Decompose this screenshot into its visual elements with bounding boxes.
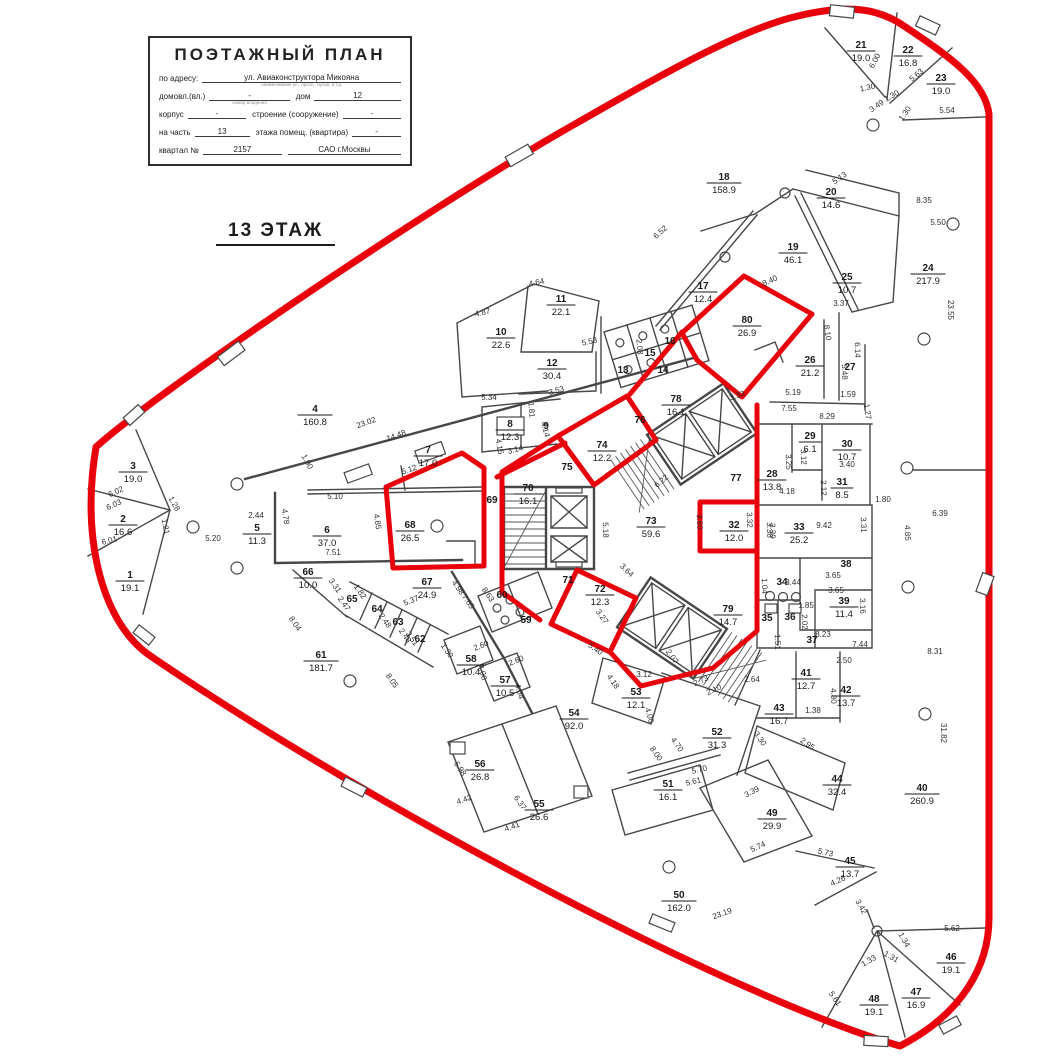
dimension-label: 4.00 — [476, 664, 489, 682]
room-label: 8026.9 — [733, 315, 762, 339]
svg-text:75: 75 — [561, 462, 573, 473]
dimension-label: 4.85 — [903, 525, 913, 541]
svg-text:11.3: 11.3 — [248, 536, 266, 547]
dimension-label: 2.10 — [705, 682, 723, 697]
dimension-label: 3.64 — [618, 562, 636, 580]
room-label: 2621.2 — [796, 355, 825, 379]
svg-text:69: 69 — [486, 495, 498, 506]
dimension-label: 4.14 — [539, 421, 552, 439]
stroenie-value: - — [343, 109, 401, 119]
title-row-house: домовл.(вл.) - номер владения дом 12 — [159, 91, 401, 101]
dimension-label: 6.14 — [853, 342, 863, 358]
room-label: 7412.2 — [588, 440, 617, 464]
dimension-label: 4.85 — [372, 513, 383, 530]
dimension-label: 5.18 — [601, 522, 611, 538]
dimension-label: 2.50 — [836, 656, 852, 665]
svg-text:46.1: 46.1 — [784, 255, 803, 266]
svg-text:22: 22 — [902, 45, 914, 56]
svg-text:21.2: 21.2 — [801, 368, 820, 379]
svg-text:29: 29 — [804, 431, 816, 442]
svg-text:55: 55 — [533, 799, 545, 810]
svg-text:26.6: 26.6 — [530, 812, 549, 823]
room-label: 40260.9 — [905, 783, 940, 807]
svg-text:39: 39 — [838, 596, 850, 607]
dimension-label: 2.60 — [472, 638, 490, 652]
svg-text:25: 25 — [841, 272, 853, 283]
room-label: 36 — [784, 612, 796, 623]
dimension-label: 8.40 — [761, 273, 779, 288]
svg-text:12.1: 12.1 — [627, 700, 646, 711]
room-label: 119.1 — [116, 570, 145, 594]
dimension-label: 7.55 — [781, 404, 797, 413]
svg-text:13.7: 13.7 — [837, 698, 856, 709]
dimension-label: 4.87 — [474, 306, 492, 318]
svg-text:30: 30 — [841, 439, 853, 450]
room-label: 38 — [840, 559, 852, 570]
svg-text:17.0: 17.0 — [419, 458, 438, 469]
dimension-label: 2.02 — [800, 614, 810, 630]
svg-text:19: 19 — [787, 242, 799, 253]
dimension-label: 3.32 — [745, 512, 755, 528]
room-label: 6610.0 — [294, 567, 323, 591]
room-label: 6826.5 — [396, 520, 425, 544]
svg-text:76: 76 — [634, 415, 646, 426]
room-label: 4716.9 — [902, 987, 931, 1011]
dimension-label: 6.39 — [932, 509, 948, 518]
dimension-label: 3.38 — [765, 522, 775, 538]
title-row-building: корпус - строение (сооружение) - — [159, 109, 401, 119]
dimension-label: 31.82 — [939, 723, 948, 744]
room-label: 63 — [392, 617, 404, 628]
svg-text:16: 16 — [664, 336, 676, 347]
room-label: 2216.8 — [894, 45, 923, 69]
svg-text:58: 58 — [465, 654, 477, 665]
room-label: 511.3 — [243, 523, 272, 547]
svg-text:26.9: 26.9 — [738, 328, 757, 339]
dimension-label: 5.54 — [939, 106, 955, 115]
svg-text:59.6: 59.6 — [642, 529, 661, 540]
svg-text:260.9: 260.9 — [910, 796, 934, 807]
room-label: 4432.4 — [823, 774, 852, 798]
dimension-label: 3.12 — [636, 670, 652, 679]
dimension-label: 8.35 — [916, 196, 932, 205]
dimension-label: 4.18 — [779, 487, 795, 496]
svg-text:52: 52 — [711, 727, 723, 738]
svg-text:45: 45 — [844, 856, 856, 867]
dimension-label: 2.44 — [248, 511, 264, 520]
svg-text:12.0: 12.0 — [725, 533, 744, 544]
svg-text:16.7: 16.7 — [770, 716, 789, 727]
svg-text:158.9: 158.9 — [712, 185, 736, 196]
dimension-label: 1.51 — [773, 634, 783, 650]
title-block: ПОЭТАЖНЫЙ ПЛАН по адресу: ул. Авиаконстр… — [148, 36, 412, 166]
room-label: 75 — [561, 462, 573, 473]
svg-text:4: 4 — [312, 404, 318, 415]
room-label: 24217.9 — [911, 263, 946, 287]
dimension-label: 4.15 — [494, 438, 506, 455]
room-label: 3325.2 — [785, 522, 814, 546]
svg-text:92.0: 92.0 — [565, 721, 584, 732]
svg-text:78: 78 — [670, 394, 682, 405]
svg-text:17: 17 — [697, 281, 709, 292]
dimension-label: 14.48 — [385, 428, 407, 443]
svg-text:73: 73 — [645, 516, 657, 527]
dimension-label: 3.14 — [507, 443, 525, 456]
room-label: 5231.3 — [703, 727, 732, 751]
title-row-address: по адресу: ул. Авиаконструктора Микояна … — [159, 73, 401, 83]
room-label: 50162.0 — [662, 890, 697, 914]
room-label: 71 — [562, 575, 574, 586]
dimension-label: 4.42 — [455, 793, 473, 807]
svg-text:26.5: 26.5 — [401, 533, 420, 544]
svg-text:26.8: 26.8 — [471, 772, 490, 783]
svg-text:67: 67 — [421, 577, 433, 588]
dimension-label: 6.01 — [101, 534, 119, 547]
room-label: 1022.6 — [487, 327, 516, 351]
svg-text:33: 33 — [793, 522, 805, 533]
svg-text:12: 12 — [546, 358, 558, 369]
svg-text:22.1: 22.1 — [552, 307, 571, 318]
svg-text:63: 63 — [392, 617, 404, 628]
room-label: 1122.1 — [547, 294, 576, 318]
svg-text:14: 14 — [657, 365, 669, 376]
svg-text:44: 44 — [831, 774, 843, 785]
svg-text:47: 47 — [910, 987, 922, 998]
svg-text:74: 74 — [596, 440, 608, 451]
svg-text:16.1: 16.1 — [659, 792, 678, 803]
floor-number-label: 13 ЭТАЖ — [216, 220, 335, 246]
svg-text:16.6: 16.6 — [114, 527, 133, 538]
svg-text:59: 59 — [520, 615, 532, 626]
dimension-label: 3.16 — [858, 598, 868, 614]
svg-text:19.0: 19.0 — [124, 474, 143, 485]
svg-text:41: 41 — [800, 668, 812, 679]
svg-text:10.5: 10.5 — [496, 688, 515, 699]
svg-text:160.8: 160.8 — [303, 417, 327, 428]
room-label: 16 — [664, 336, 676, 347]
svg-text:28: 28 — [766, 469, 778, 480]
room-label: 5492.0 — [560, 708, 589, 732]
svg-text:18: 18 — [718, 172, 730, 183]
room-label: 15 — [644, 348, 656, 359]
svg-text:56: 56 — [474, 759, 486, 770]
svg-text:60: 60 — [496, 590, 508, 601]
svg-text:19.0: 19.0 — [852, 53, 871, 64]
dimension-label: 5.61 — [827, 990, 844, 1008]
svg-text:48: 48 — [868, 994, 880, 1005]
title-block-heading: ПОЭТАЖНЫЙ ПЛАН — [159, 45, 401, 65]
dimension-label: 1.90 — [299, 453, 315, 471]
dimension-label: 4.18 — [605, 673, 622, 691]
dimension-label: 5.10 — [327, 492, 343, 501]
room-label: 2319.0 — [927, 73, 956, 97]
dimension-label: 5.20 — [205, 534, 221, 543]
svg-text:15: 15 — [644, 348, 656, 359]
svg-text:14.6: 14.6 — [822, 200, 841, 211]
part-label: на часть — [159, 128, 191, 137]
dimension-label: 3.42 — [853, 898, 869, 916]
svg-text:12.2: 12.2 — [593, 453, 612, 464]
room-label: 13 — [617, 365, 629, 376]
svg-text:16.1: 16.1 — [519, 496, 538, 507]
dimension-label: 3.65 — [825, 571, 841, 580]
svg-text:40: 40 — [916, 783, 928, 794]
svg-text:11: 11 — [556, 294, 567, 305]
svg-text:12.3: 12.3 — [591, 597, 610, 608]
dimension-label: 23.19 — [711, 906, 733, 921]
dimension-label: 8.00 — [648, 745, 665, 763]
dimension-label: 5.61 — [685, 775, 703, 788]
title-row-floor: на часть 13 этажа помещ. (квартира) - — [159, 127, 401, 137]
dimension-label: 6.37 — [512, 794, 529, 812]
svg-text:2: 2 — [120, 514, 126, 525]
dimension-label: 2.48 — [377, 612, 394, 630]
room-label: 77 — [730, 473, 742, 484]
svg-text:53: 53 — [630, 687, 642, 698]
svg-text:181.7: 181.7 — [309, 663, 333, 674]
floor-rooms-label: этажа помещ. (квартира) — [256, 128, 348, 137]
room-label: 3212.0 — [720, 520, 749, 544]
room-label: 5626.8 — [466, 759, 495, 783]
svg-text:8: 8 — [507, 419, 513, 430]
room-label: 7914.7 — [714, 604, 743, 628]
dimension-label: 4.41 — [503, 820, 521, 834]
svg-text:11.4: 11.4 — [835, 609, 853, 620]
korpus-label: корпус — [159, 110, 184, 119]
svg-text:24.9: 24.9 — [418, 590, 437, 601]
address-note: наименование ул., просп., бульв. и т.д. — [202, 82, 401, 87]
room-label: 4160.8 — [298, 404, 333, 428]
svg-text:21: 21 — [855, 40, 867, 51]
dimension-label: 3.37 — [833, 299, 849, 308]
svg-text:25.2: 25.2 — [790, 535, 809, 546]
dimension-label: 4.80 — [829, 688, 839, 704]
svg-text:68: 68 — [404, 520, 416, 531]
dimension-label: 5.53 — [581, 335, 599, 347]
room-label: 4929.9 — [758, 808, 787, 832]
dimension-label: 8.31 — [927, 647, 943, 656]
room-label: 2510.7 — [833, 272, 862, 296]
svg-text:72: 72 — [594, 584, 606, 595]
dimension-label: 8.29 — [819, 412, 835, 421]
title-row-kvartal: квартал № 2157 САО г.Москвы — [159, 145, 401, 155]
svg-text:51: 51 — [662, 779, 674, 790]
room-label: 637.0 — [313, 525, 342, 549]
dimension-label: 23.55 — [946, 300, 955, 321]
dimension-label: 9.42 — [816, 521, 832, 530]
dimension-label: 5.48 — [840, 364, 850, 380]
kvartal-label: квартал № — [159, 146, 199, 155]
svg-text:36: 36 — [784, 612, 796, 623]
dimension-label: 3.39 — [743, 784, 761, 800]
svg-text:77: 77 — [730, 473, 742, 484]
kvartal-value: 2157 — [203, 145, 282, 155]
svg-text:26: 26 — [804, 355, 816, 366]
dimension-label: 3.25 — [784, 454, 794, 470]
flat-value: - — [352, 127, 401, 137]
svg-text:217.9: 217.9 — [916, 276, 940, 287]
svg-text:24: 24 — [922, 263, 934, 274]
dimension-label: 3.12 — [799, 449, 809, 465]
room-label: 4316.7 — [765, 703, 794, 727]
dimension-label: 8.04 — [287, 615, 304, 633]
room-label: 14 — [657, 365, 669, 376]
room-label: 4619.1 — [937, 952, 966, 976]
room-label: 318.5 — [831, 477, 854, 501]
svg-text:16.8: 16.8 — [899, 58, 918, 69]
dimension-label: 1.81 — [526, 402, 536, 419]
dimension-label: 8.05 — [384, 672, 401, 690]
svg-text:70: 70 — [522, 483, 534, 494]
svg-text:8.5: 8.5 — [835, 490, 848, 501]
svg-text:23: 23 — [935, 73, 947, 84]
svg-text:38: 38 — [840, 559, 852, 570]
ownership-note: номер владения — [209, 100, 289, 105]
dimension-label: 4.78 — [280, 508, 291, 525]
dimension-label: 6.22 — [653, 472, 671, 489]
svg-text:13: 13 — [617, 365, 629, 376]
room-label: 18158.9 — [707, 172, 742, 196]
dimension-label: 5.34 — [481, 393, 497, 402]
dimension-label: 3.49 — [868, 97, 886, 114]
room-label: 76 — [634, 415, 646, 426]
room-label: 69 — [486, 495, 498, 506]
dimension-label: 2.08 — [634, 339, 644, 356]
dimension-label: 8.23 — [815, 630, 831, 639]
district-value: САО г.Москвы — [288, 145, 401, 155]
svg-text:1: 1 — [127, 570, 133, 581]
dimension-label: 1.59 — [840, 390, 856, 399]
svg-text:20: 20 — [825, 187, 837, 198]
korpus-value: - — [188, 109, 246, 119]
svg-text:80: 80 — [741, 315, 753, 326]
room-label: 7359.6 — [637, 516, 666, 540]
dimension-label: 5.50 — [930, 218, 946, 227]
svg-text:6: 6 — [324, 525, 330, 536]
svg-text:16.9: 16.9 — [907, 1000, 926, 1011]
dimension-label: 1.27 — [862, 403, 873, 420]
svg-text:10.7: 10.7 — [838, 285, 857, 296]
dimension-label: 2.64 — [744, 675, 760, 684]
svg-text:19.1: 19.1 — [942, 965, 961, 976]
svg-text:49: 49 — [766, 808, 778, 819]
svg-text:22.6: 22.6 — [492, 340, 511, 351]
dimension-label: 1.30 — [439, 642, 456, 660]
dimension-label: 6.98 — [452, 760, 469, 778]
svg-text:42: 42 — [840, 685, 852, 696]
dimension-label: 7.44 — [852, 640, 868, 649]
room-label: 3911.4 — [830, 596, 859, 620]
svg-text:19.1: 19.1 — [121, 583, 140, 594]
svg-text:12.7: 12.7 — [797, 681, 816, 692]
room-label: 60 — [496, 590, 508, 601]
floor-plan-page: 119.1216.6319.04160.8511.3637.0717.0812.… — [0, 0, 1043, 1057]
dimension-label: 3.31 — [327, 577, 344, 595]
room-label: 1946.1 — [779, 242, 808, 266]
dimension-label: 6.03 — [105, 497, 123, 512]
dimension-label: 6.52 — [652, 223, 670, 240]
svg-text:32.4: 32.4 — [828, 787, 847, 798]
ownership-label: домовл.(вл.) — [159, 92, 205, 101]
svg-text:162.0: 162.0 — [667, 903, 691, 914]
room-label: 61181.7 — [304, 650, 339, 674]
svg-text:19.1: 19.1 — [865, 1007, 884, 1018]
room-label: 35 — [761, 613, 773, 624]
svg-text:50: 50 — [673, 890, 685, 901]
svg-text:66: 66 — [302, 567, 314, 578]
svg-text:29.9: 29.9 — [763, 821, 782, 832]
svg-text:16.1: 16.1 — [667, 407, 686, 418]
dimension-label: 1.85 — [798, 601, 814, 610]
room-label: 1230.4 — [538, 358, 567, 382]
svg-text:71: 71 — [562, 575, 574, 586]
room-label: 5116.1 — [654, 779, 683, 803]
dimension-label: 3.44 — [785, 578, 801, 587]
dimension-label: 3.60 — [695, 514, 705, 530]
dimension-label: 5.62 — [944, 924, 960, 933]
svg-text:46: 46 — [945, 952, 957, 963]
dimension-label: 4.70 — [669, 736, 686, 754]
svg-text:31: 31 — [836, 477, 848, 488]
dimension-label: 3.53 — [548, 384, 566, 397]
house-label: дом — [296, 92, 311, 101]
dimension-label: 5.13 — [831, 169, 849, 186]
stair-elevator-core-left — [504, 487, 594, 569]
svg-text:7: 7 — [425, 445, 431, 456]
room-label: 319.0 — [119, 461, 148, 485]
svg-text:3: 3 — [130, 461, 136, 472]
dimension-label: 3.40 — [839, 460, 855, 469]
svg-text:30.4: 30.4 — [543, 371, 562, 382]
svg-text:12.4: 12.4 — [694, 294, 713, 305]
part-value: 13 — [195, 127, 250, 137]
dimension-label: 1.04 — [760, 578, 770, 594]
dimension-label: 23.02 — [355, 415, 377, 430]
room-label: 59 — [520, 615, 532, 626]
dimension-label: 5.73 — [817, 847, 835, 859]
svg-text:43: 43 — [773, 703, 785, 714]
svg-text:79: 79 — [722, 604, 734, 615]
dimension-label: 1.38 — [805, 706, 821, 715]
dimension-label: 4.04 — [513, 683, 526, 701]
dimension-label: 1.34 — [896, 931, 912, 949]
svg-text:54: 54 — [568, 708, 580, 719]
room-label: 4819.1 — [860, 994, 889, 1018]
dimension-label: 3.27 — [594, 608, 611, 626]
svg-text:57: 57 — [499, 675, 511, 686]
dimension-label: 1.21 — [160, 518, 172, 535]
dimension-label: 5.74 — [749, 839, 767, 854]
dimension-label: 7.51 — [325, 548, 341, 557]
dimension-label: 3.65 — [828, 586, 844, 595]
svg-text:35: 35 — [761, 613, 773, 624]
svg-text:10: 10 — [495, 327, 507, 338]
dimension-label: 3.31 — [859, 517, 869, 533]
dimension-label: 5.19 — [785, 388, 801, 397]
svg-text:10.0: 10.0 — [299, 580, 318, 591]
address-value: ул. Авиаконструктора Микояна наименовани… — [202, 73, 401, 83]
svg-text:61: 61 — [315, 650, 327, 661]
svg-text:19.0: 19.0 — [932, 86, 951, 97]
svg-text:14.7: 14.7 — [719, 617, 738, 628]
house-value: 12 — [314, 91, 401, 101]
ownership-value: - номер владения — [209, 91, 289, 101]
dimension-label: 5.70 — [691, 763, 709, 776]
svg-text:5: 5 — [254, 523, 260, 534]
dimension-label: 5.40 — [586, 641, 604, 658]
address-label: по адресу: — [159, 74, 198, 83]
svg-text:32: 32 — [728, 520, 740, 531]
